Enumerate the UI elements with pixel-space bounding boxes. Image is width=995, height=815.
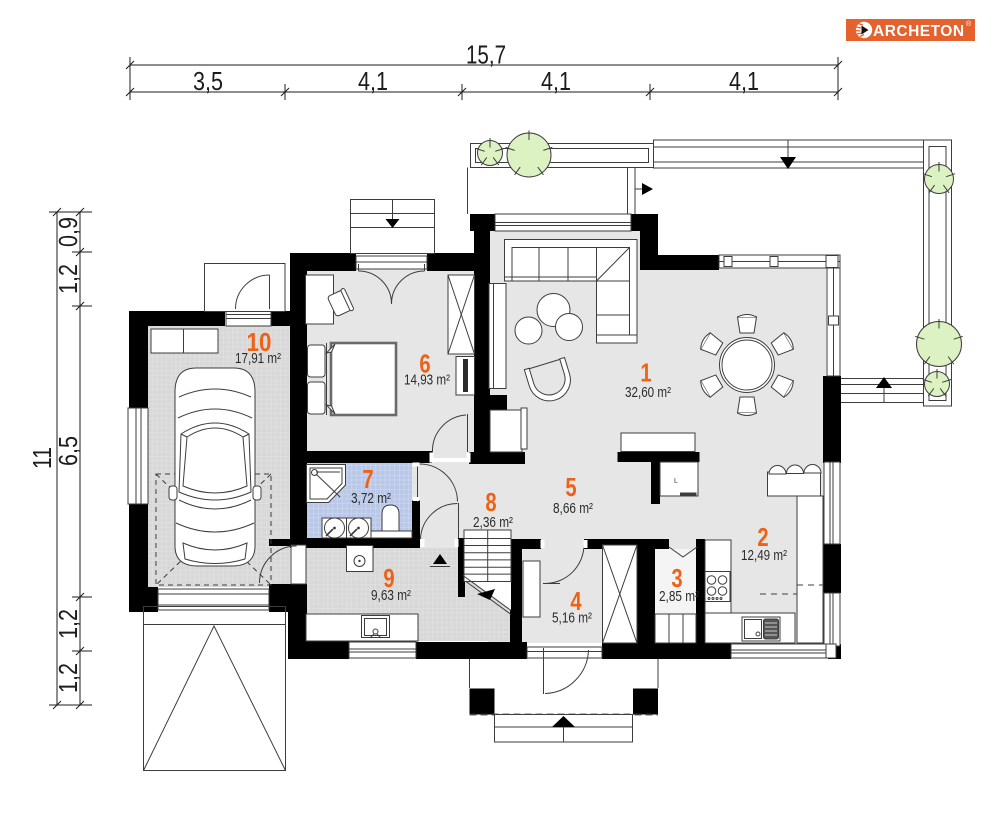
svg-text:17,91 m²: 17,91 m²: [235, 351, 281, 367]
svg-text:4,1: 4,1: [541, 66, 571, 96]
svg-text:4,1: 4,1: [729, 66, 759, 96]
svg-text:5,16 m²: 5,16 m²: [552, 611, 592, 627]
svg-text:1: 1: [640, 358, 651, 387]
svg-text:6,5: 6,5: [53, 436, 83, 466]
svg-text:15,7: 15,7: [466, 40, 506, 70]
svg-text:0,9: 0,9: [53, 217, 83, 247]
svg-text:1,2: 1,2: [53, 609, 83, 639]
svg-text:14,93 m²: 14,93 m²: [404, 373, 450, 389]
svg-text:5: 5: [565, 473, 576, 502]
svg-text:L: L: [674, 478, 678, 485]
svg-text:3,72 m²: 3,72 m²: [351, 491, 391, 507]
svg-text:2,36 m²: 2,36 m²: [473, 515, 513, 531]
svg-text:12,49 m²: 12,49 m²: [741, 548, 787, 564]
svg-text:8: 8: [485, 488, 496, 517]
svg-text:ARCHETON: ARCHETON: [873, 23, 965, 40]
svg-text:®: ®: [966, 20, 972, 28]
svg-text:1,2: 1,2: [53, 264, 83, 294]
svg-text:32,60 m²: 32,60 m²: [625, 385, 671, 401]
svg-text:7: 7: [362, 465, 373, 494]
svg-text:1,2: 1,2: [53, 663, 83, 693]
svg-text:3,5: 3,5: [193, 66, 223, 96]
svg-text:2,85 m²: 2,85 m²: [659, 589, 699, 605]
svg-text:9,63 m²: 9,63 m²: [371, 588, 411, 604]
svg-text:4,1: 4,1: [358, 66, 388, 96]
svg-text:8,66 m²: 8,66 m²: [553, 501, 593, 517]
